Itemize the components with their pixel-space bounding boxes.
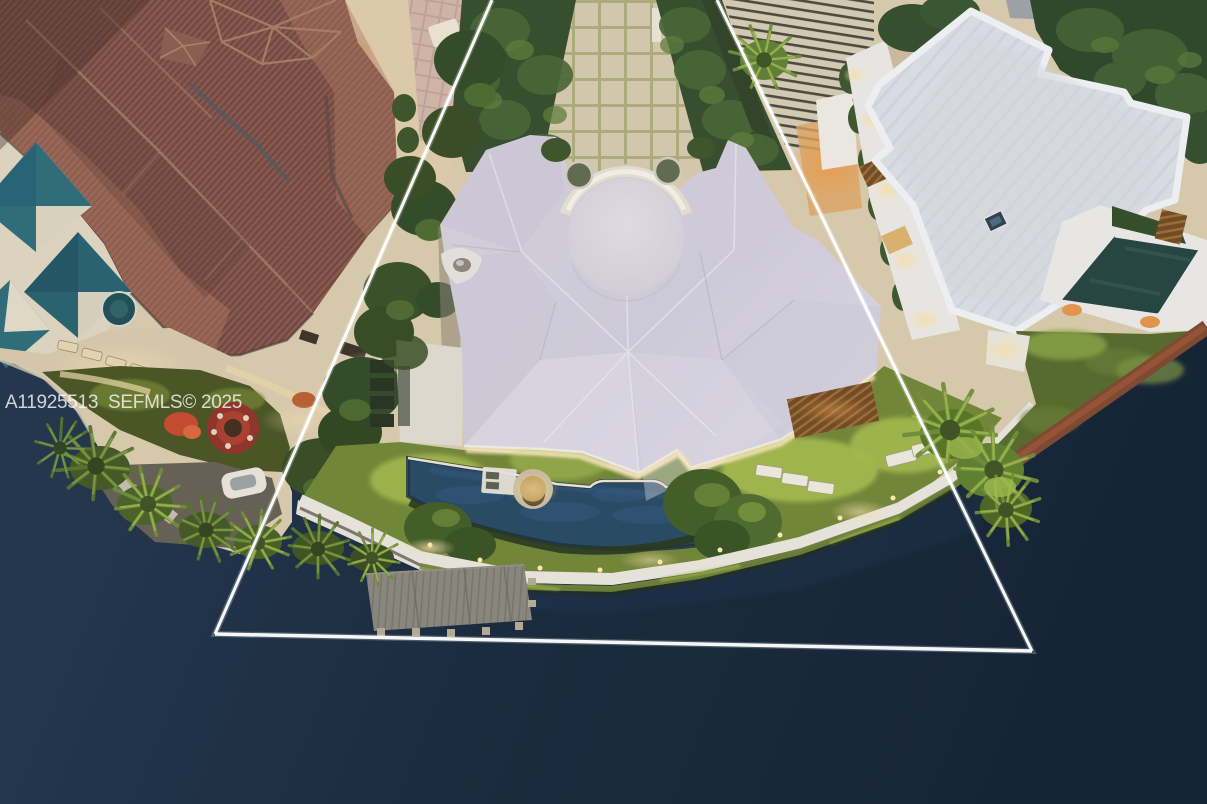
svg-text:A11925513 SEFMLS© 2025: A11925513 SEFMLS© 2025 <box>5 392 242 413</box>
